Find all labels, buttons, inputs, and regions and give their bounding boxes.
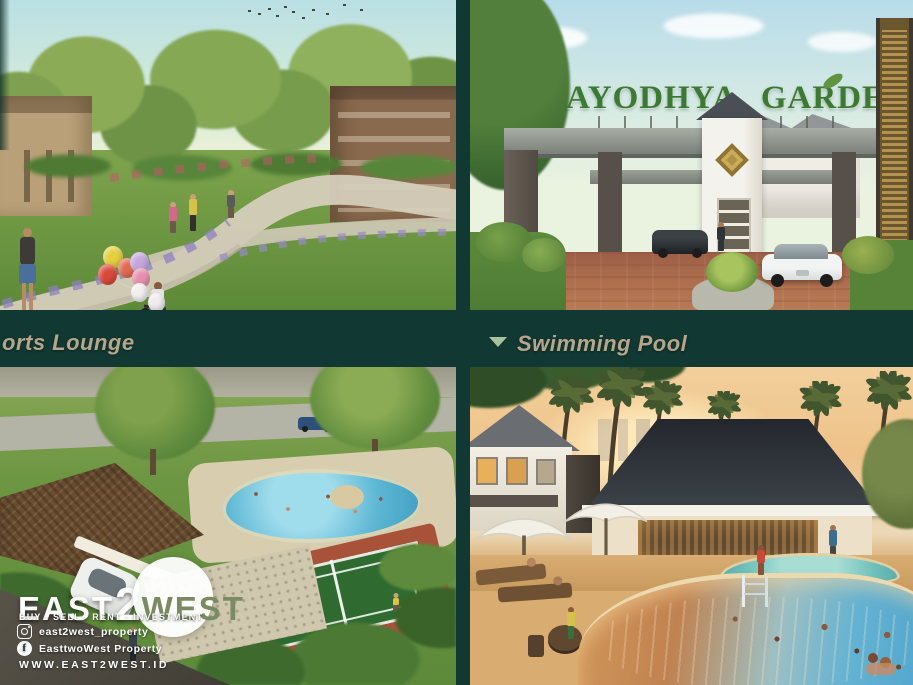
east2west-logo-block: EAST 2 WEST BUY · SELL · RENT · INVESTME…	[14, 555, 254, 683]
brand-tagline: BUY · SELL · RENT · INVESTMENT	[19, 612, 203, 622]
gate-tower-roof	[696, 92, 768, 120]
cafe-chair	[528, 635, 544, 657]
balloon	[98, 264, 117, 285]
logo-east-text: EAST	[18, 590, 114, 628]
shrub	[842, 236, 894, 274]
instagram-icon	[17, 624, 32, 639]
triangle-down-icon	[489, 337, 507, 347]
section-label-band	[0, 310, 913, 367]
facebook-name: EasttwoWest Property	[39, 643, 162, 655]
median-plant	[706, 252, 758, 292]
swimming-pool-label: Swimming Pool	[517, 331, 687, 357]
big-tree	[310, 367, 440, 449]
logo-west-text: WEST	[142, 590, 245, 628]
balloon	[131, 283, 148, 302]
black-car	[652, 230, 708, 254]
big-tree-trunk	[150, 449, 156, 475]
balloon	[148, 293, 165, 310]
swimmer-pair	[866, 653, 896, 679]
cafe-table	[548, 625, 582, 651]
facebook-row: f EasttwoWest Property	[17, 641, 162, 656]
guard-figure	[716, 222, 725, 252]
panel-swimming-pool	[470, 367, 913, 685]
kid-poolside	[756, 545, 766, 579]
facebook-icon: f	[17, 641, 32, 656]
gate-beam	[504, 128, 880, 158]
umbrella	[562, 483, 650, 563]
sports-lounge-label: orts Lounge	[2, 330, 135, 356]
balloon-strings	[0, 0, 456, 310]
shrub	[522, 238, 566, 272]
gate-pillar-left	[598, 152, 622, 264]
swimming-pool-label-group: Swimming Pool	[489, 331, 687, 357]
property-brochure: AYODHYA GARDEN	[0, 0, 913, 685]
panel-entrance-gate: AYODHYA GARDEN	[470, 0, 913, 310]
website-url: WWW.EAST2WEST.ID	[19, 659, 169, 671]
instagram-handle: east2west_property	[39, 626, 148, 638]
corner-shadow	[0, 0, 10, 150]
white-car	[762, 244, 842, 284]
panel-garden-view	[0, 0, 456, 310]
child-figure	[566, 607, 576, 641]
instagram-row: east2west_property	[17, 624, 148, 639]
